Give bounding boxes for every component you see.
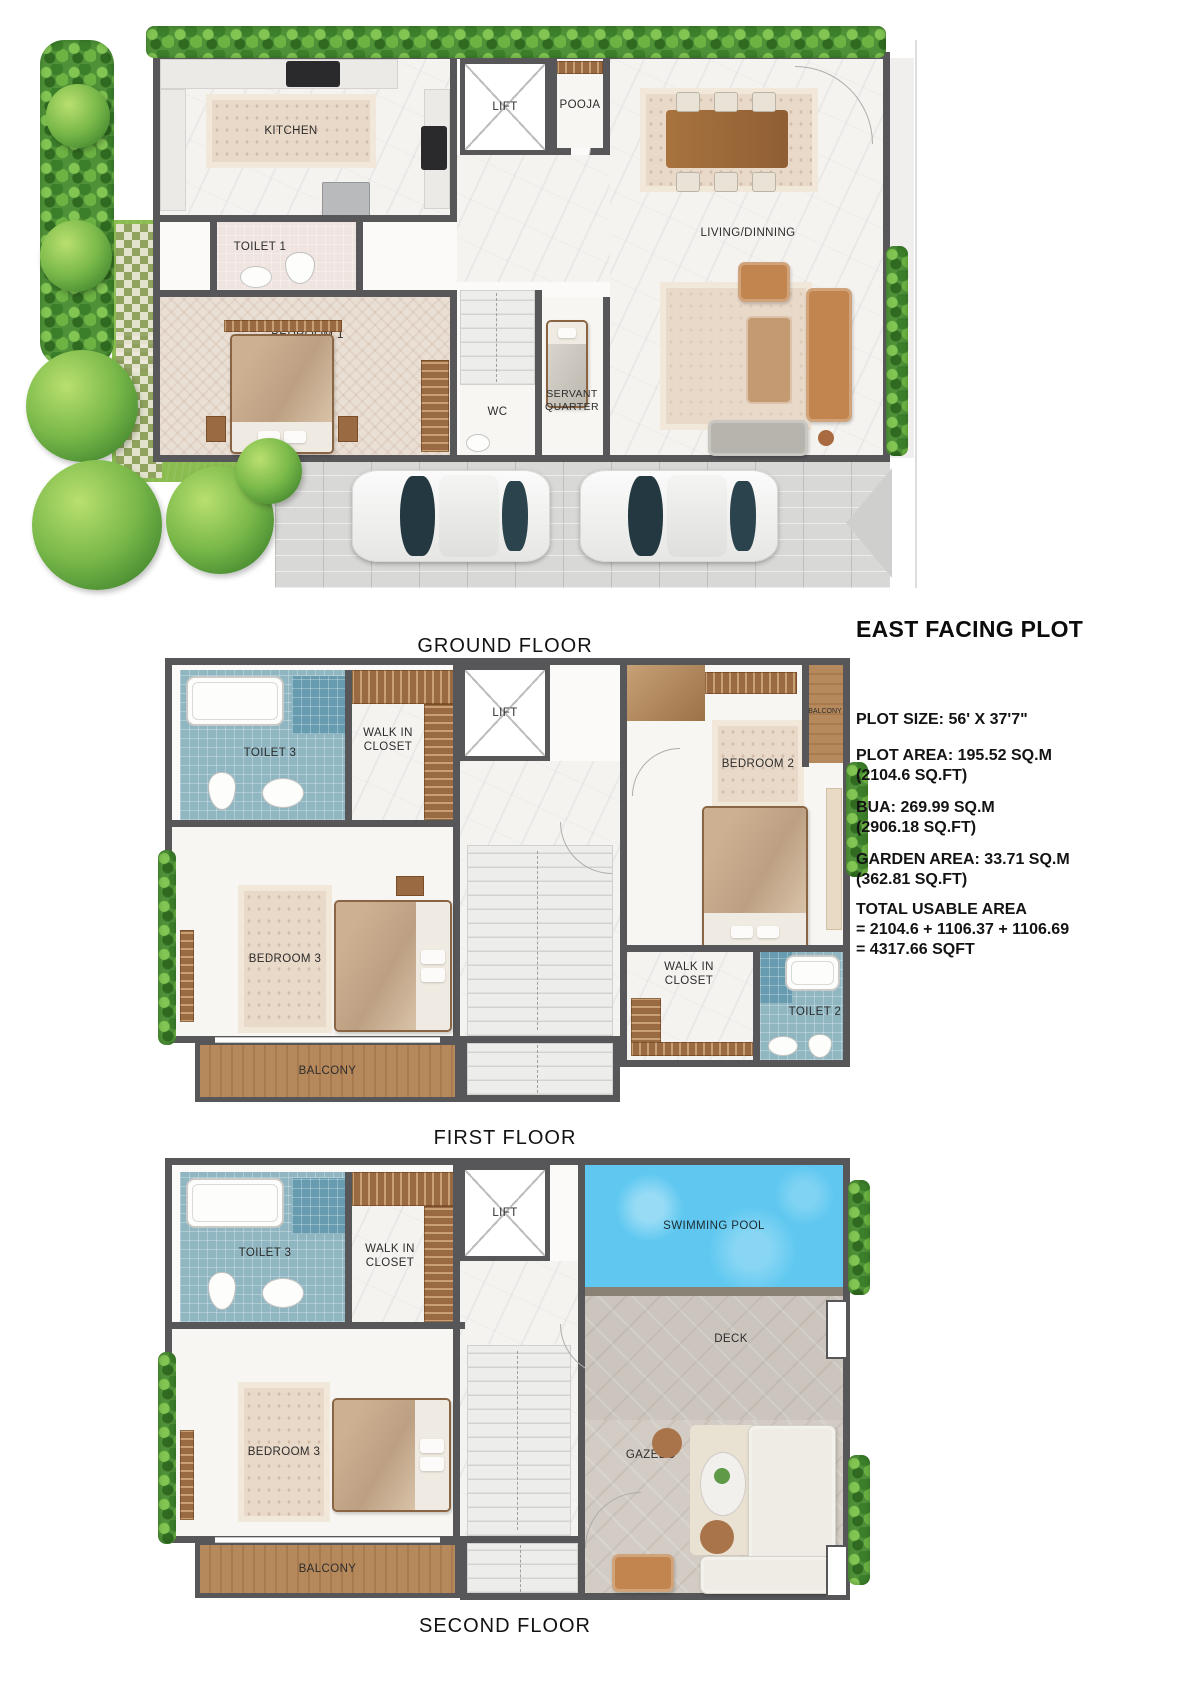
hall-floor bbox=[457, 155, 610, 282]
kitchen-counter-left bbox=[160, 89, 186, 211]
tree bbox=[46, 84, 110, 148]
staircase-second bbox=[467, 1345, 571, 1536]
dining-table bbox=[666, 110, 788, 168]
walk-in-wardrobe-top-second bbox=[352, 1172, 458, 1206]
nightstand bbox=[206, 416, 226, 442]
ground-floor-label: GROUND FLOOR bbox=[355, 634, 655, 658]
toilet-2-bathtub bbox=[785, 955, 840, 991]
room-lift-second: LIFT bbox=[460, 1165, 550, 1261]
info-plot-area-2: (2104.6 SQ.FT) bbox=[856, 766, 967, 786]
room-balcony-second: BALCONY bbox=[195, 1540, 460, 1598]
info-total-2: = 2104.6 + 1106.37 + 1106.69 bbox=[856, 920, 1069, 940]
bedroom-1-bed bbox=[230, 334, 334, 454]
bedroom-1-wardrobe bbox=[421, 360, 449, 452]
info-bua-1: BUA: 269.99 SQ.M bbox=[856, 798, 995, 818]
kitchen-counter-top bbox=[160, 59, 398, 89]
room-label-toilet-3-second: TOILET 3 bbox=[205, 1246, 325, 1260]
gate-marking bbox=[846, 468, 892, 578]
room-label-bedroom-3-first: BEDROOM 3 bbox=[249, 952, 322, 966]
walk-in-wardrobe-top bbox=[352, 670, 458, 704]
toilet-3-sink bbox=[262, 778, 304, 808]
hedge-living-right bbox=[886, 246, 908, 456]
first-floor-label: FIRST FLOOR bbox=[355, 1126, 655, 1150]
bedroom-3-dresser-second bbox=[180, 1430, 194, 1520]
info-total-1: TOTAL USABLE AREA bbox=[856, 900, 1027, 920]
room-label-lift-second: LIFT bbox=[492, 1206, 517, 1220]
toilet-1-sink bbox=[240, 266, 272, 288]
toilet-3-bathtub-second bbox=[186, 1178, 284, 1228]
gazebo-side-table bbox=[652, 1428, 682, 1458]
toilet-2-sink bbox=[768, 1036, 798, 1056]
staircase-first bbox=[467, 845, 613, 1036]
info-plot-area-1: PLOT AREA: 195.52 SQ.M bbox=[856, 746, 1052, 766]
room-label-walk-in-second: WALK IN CLOSET bbox=[352, 1242, 428, 1271]
info-plot-size: PLOT SIZE: 56' X 37'7" bbox=[856, 710, 1028, 730]
room-label-balcony-second: BALCONY bbox=[299, 1562, 357, 1576]
info-bua-2: (2906.18 SQ.FT) bbox=[856, 818, 976, 838]
bedroom-3-dresser-first bbox=[180, 930, 194, 1022]
coffee-table bbox=[746, 316, 792, 404]
room-label-walk-in-first-left: WALK IN CLOSET bbox=[350, 726, 426, 755]
room-swimming-pool: SWIMMING POOL bbox=[585, 1165, 843, 1287]
bedroom-1-dresser bbox=[224, 320, 342, 332]
bedroom-3-bed-second bbox=[332, 1398, 451, 1512]
kitchen-hob bbox=[286, 61, 340, 87]
tree bbox=[32, 460, 162, 590]
toilet-3-shower-second bbox=[292, 1178, 345, 1234]
plot-boundary-line bbox=[915, 40, 917, 588]
staircase-ground bbox=[460, 290, 535, 385]
room-label-toilet-2: TOILET 2 bbox=[770, 1005, 860, 1019]
room-label-lift-first: LIFT bbox=[492, 706, 517, 720]
bedroom-3-rug-second: BEDROOM 3 bbox=[238, 1382, 330, 1522]
gazebo-stool bbox=[700, 1520, 734, 1554]
floor-plan-canvas: KITCHEN LIFT POOJA LIVING/DINNING bbox=[0, 0, 1191, 1684]
tree bbox=[26, 350, 138, 462]
info-title: EAST FACING PLOT bbox=[856, 616, 1083, 643]
room-label-walk-in-first-right: WALK IN CLOSET bbox=[648, 960, 730, 989]
room-label-kitchen: KITCHEN bbox=[264, 124, 317, 138]
room-label-balcony-first-left: BALCONY bbox=[299, 1064, 357, 1078]
hedge-second-right-bottom bbox=[848, 1455, 870, 1585]
bedroom-2-console bbox=[705, 672, 797, 694]
car-1 bbox=[352, 470, 550, 562]
room-label-wc: WC bbox=[470, 405, 525, 419]
toilet-3-shower bbox=[292, 676, 345, 734]
gazebo-sofa-horizontal bbox=[700, 1556, 835, 1594]
gazebo-loveseat bbox=[612, 1554, 674, 1592]
room-label-swimming-pool: SWIMMING POOL bbox=[663, 1219, 765, 1233]
ledge-box bbox=[826, 1545, 848, 1597]
toilet-3-bathtub bbox=[186, 676, 284, 726]
room-lift-ground: LIFT bbox=[460, 59, 550, 155]
window-seat bbox=[826, 788, 842, 930]
kitchen-rug: KITCHEN bbox=[206, 94, 376, 168]
car-2 bbox=[580, 470, 778, 562]
hedge-second-right-top bbox=[848, 1180, 870, 1295]
nightstand bbox=[396, 876, 424, 896]
info-garden-1: GARDEN AREA: 33.71 SQ.M bbox=[856, 850, 1070, 870]
room-label-toilet-3-first: TOILET 3 bbox=[210, 746, 330, 760]
bedroom-2-bed bbox=[702, 806, 808, 952]
tree bbox=[236, 438, 302, 504]
room-label-balcony-first-right: BALCONY bbox=[800, 708, 850, 717]
info-total-3: = 4317.66 SQFT bbox=[856, 940, 975, 960]
pool-coping bbox=[585, 1287, 843, 1296]
sofa-long bbox=[806, 288, 852, 422]
room-balcony-first-left: BALCONY bbox=[195, 1040, 460, 1102]
gazebo-coffee-table bbox=[700, 1452, 746, 1516]
gazebo-plant bbox=[714, 1468, 730, 1484]
tree bbox=[40, 220, 112, 292]
info-garden-2: (362.81 SQ.FT) bbox=[856, 870, 967, 890]
room-lift-first: LIFT bbox=[460, 665, 550, 761]
bedroom-2-rug: BEDROOM 2 bbox=[712, 720, 804, 808]
room-label-bedroom-3-second: BEDROOM 3 bbox=[248, 1445, 321, 1459]
armchair bbox=[738, 262, 790, 302]
bedroom-3-rug-first: BEDROOM 3 bbox=[238, 885, 332, 1033]
hedge-first-left bbox=[158, 850, 176, 1045]
bedroom-2-wood-floor bbox=[627, 665, 705, 721]
pooja-shelf bbox=[557, 61, 603, 74]
sofa-bench bbox=[708, 420, 808, 456]
toilet-3-sink-second bbox=[262, 1278, 304, 1308]
room-label-bedroom-2: BEDROOM 2 bbox=[722, 757, 795, 771]
wc-sink bbox=[466, 434, 490, 452]
floor-pot bbox=[818, 430, 834, 446]
kitchen-cooktop bbox=[421, 126, 447, 170]
room-label-lift-ground: LIFT bbox=[492, 100, 517, 114]
room-label-living-dining: LIVING/DINNING bbox=[648, 226, 848, 240]
walk-in-right-wardrobe-bottom bbox=[631, 1042, 753, 1056]
hedge-top bbox=[146, 26, 886, 58]
room-deck bbox=[585, 1296, 843, 1420]
room-label-toilet-1: TOILET 1 bbox=[215, 240, 305, 254]
hedge-second-left bbox=[158, 1352, 176, 1544]
room-label-deck: DECK bbox=[676, 1332, 786, 1346]
nightstand bbox=[338, 416, 358, 442]
ledge-box bbox=[826, 1300, 848, 1359]
second-floor-label: SECOND FLOOR bbox=[355, 1614, 655, 1638]
bedroom-3-bed-first bbox=[334, 900, 452, 1032]
